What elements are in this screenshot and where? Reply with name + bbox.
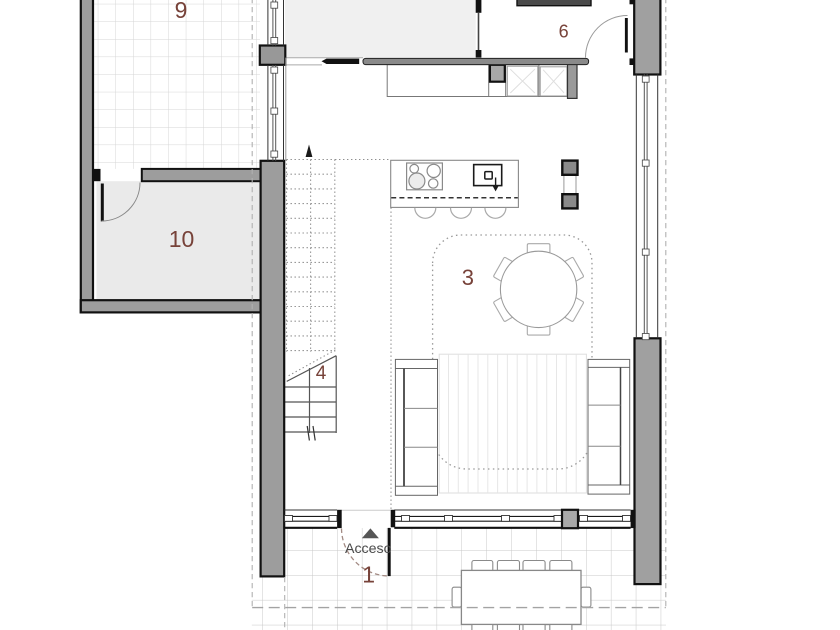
svg-text:4: 4 bbox=[316, 363, 327, 384]
svg-text:9: 9 bbox=[175, 0, 188, 23]
svg-text:1: 1 bbox=[362, 561, 375, 587]
svg-text:10: 10 bbox=[169, 226, 195, 252]
svg-text:3: 3 bbox=[462, 265, 474, 290]
svg-text:Acceso: Acceso bbox=[345, 541, 392, 557]
svg-text:6: 6 bbox=[559, 21, 569, 41]
